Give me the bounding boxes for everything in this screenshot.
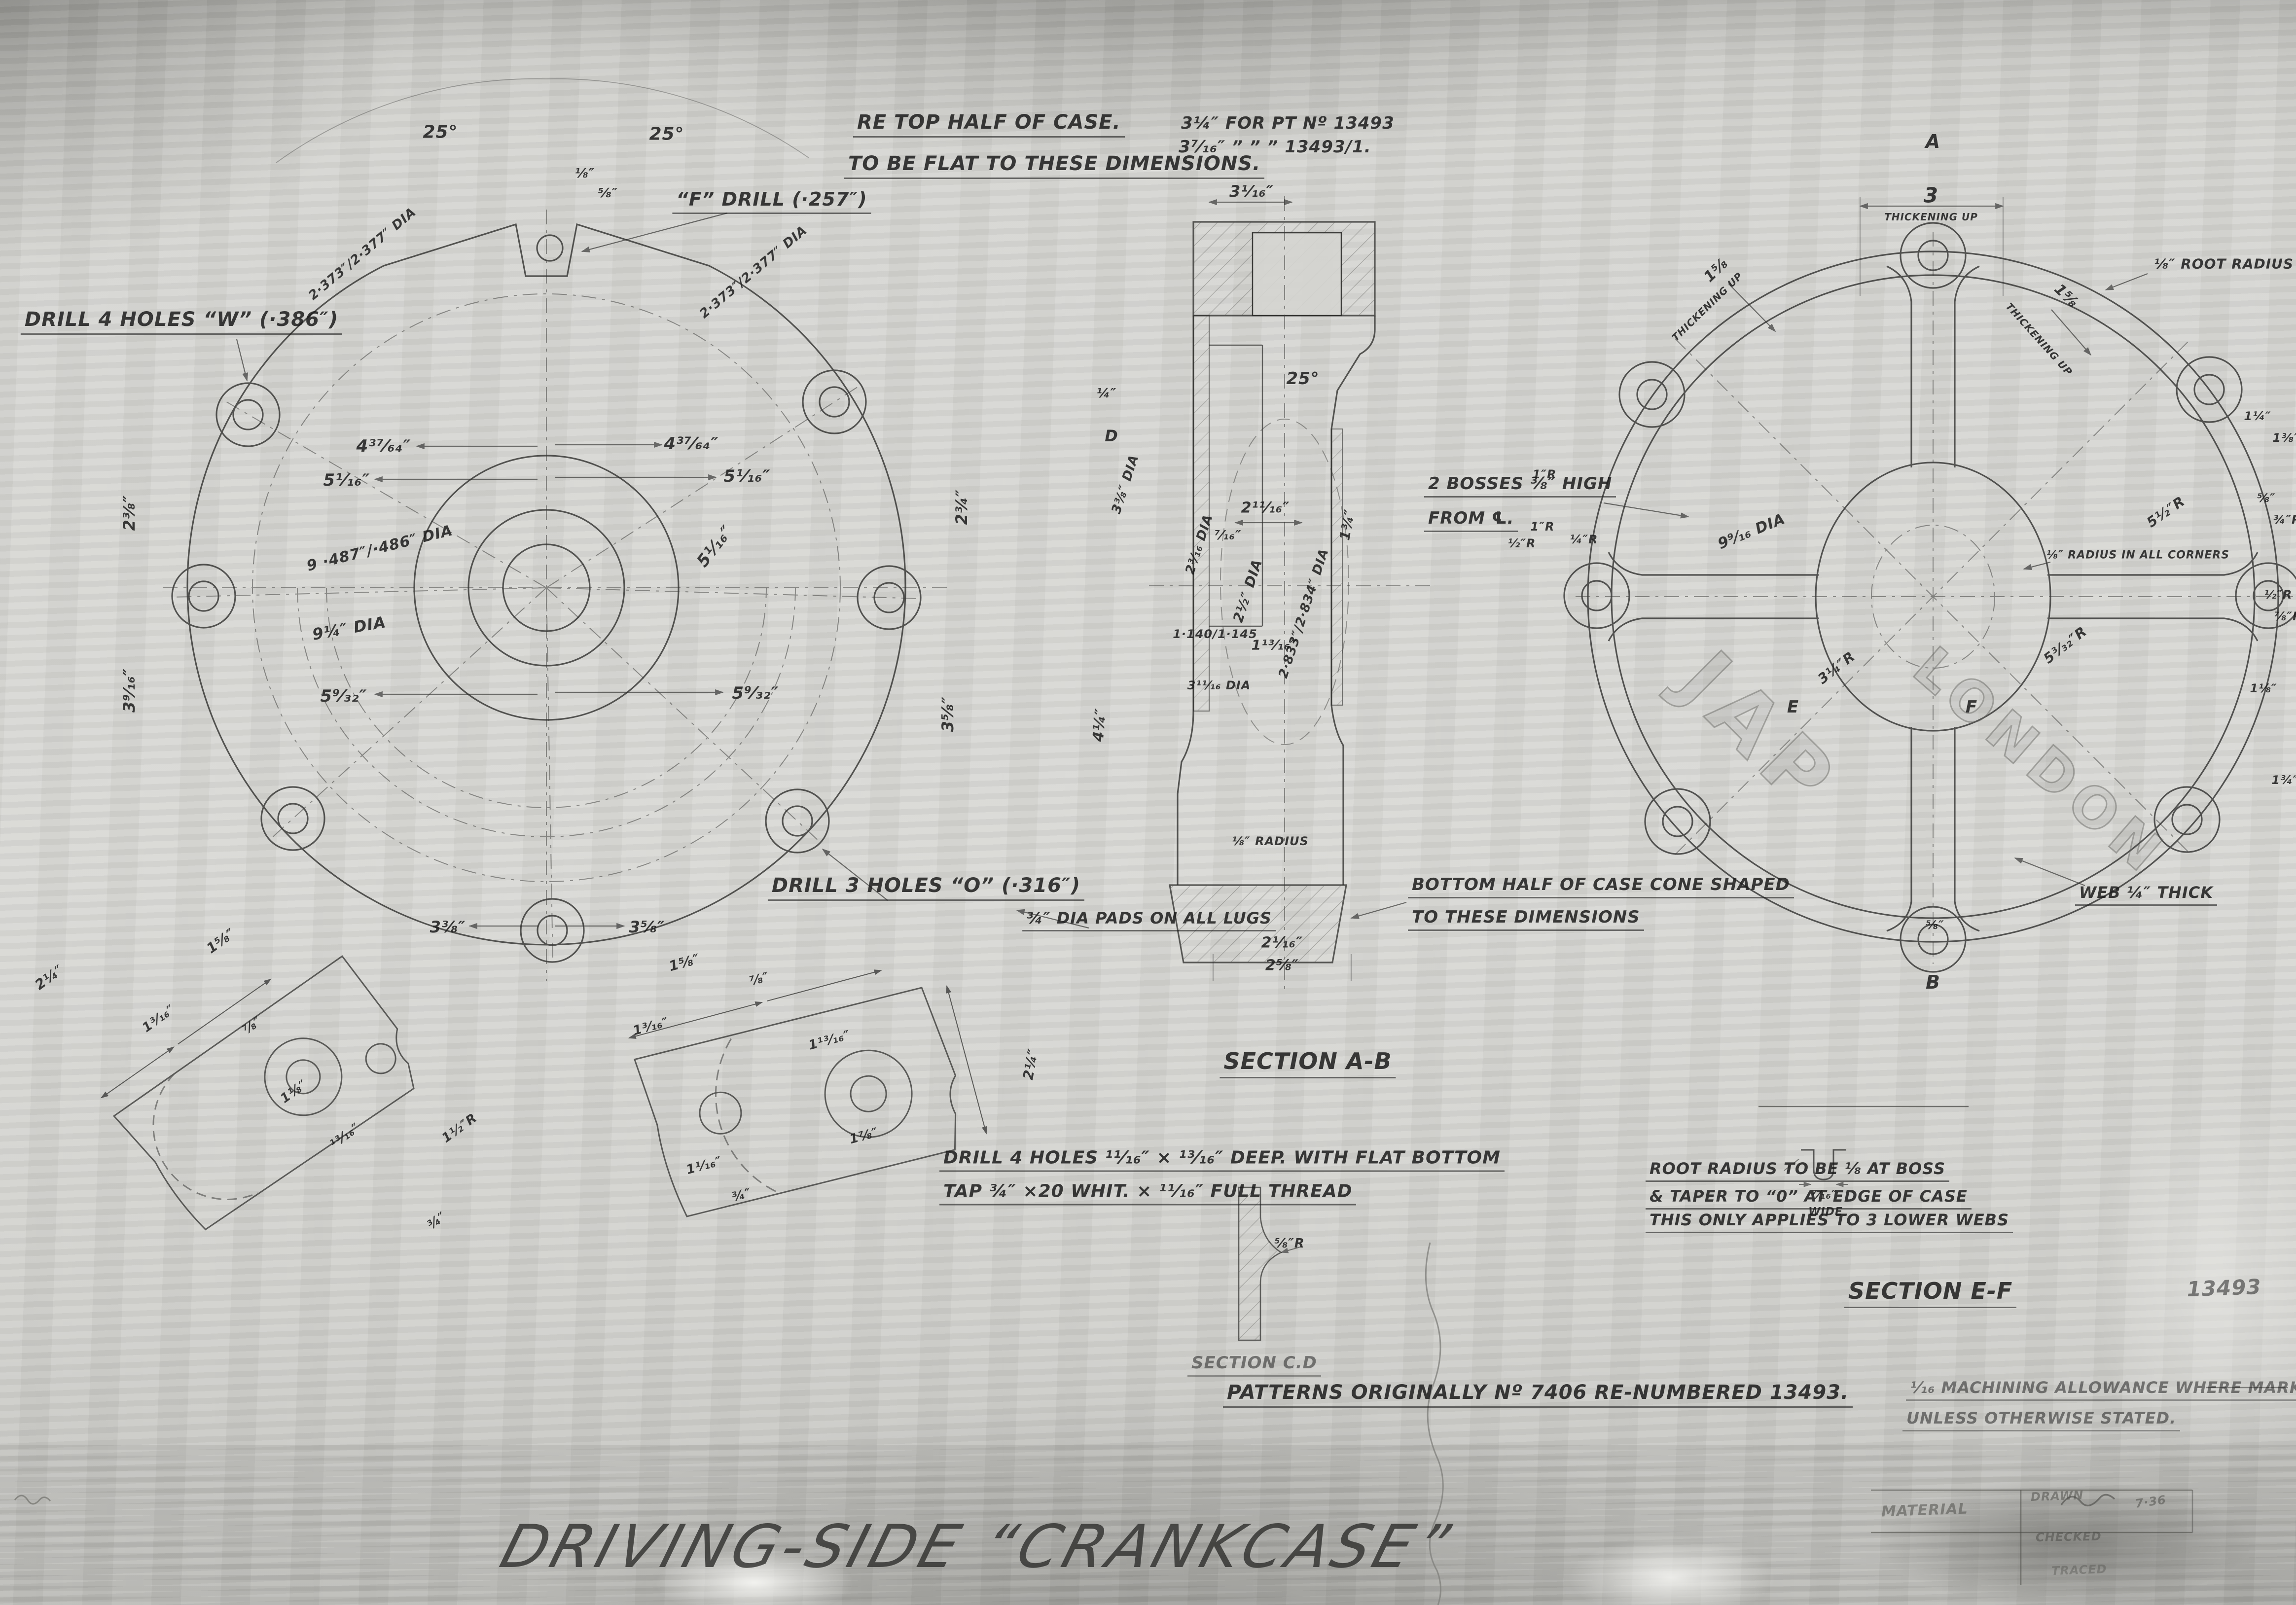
title-block-material-label: MATERIAL [1881, 1500, 1968, 1520]
dim: 3⅝″ [629, 918, 665, 936]
section-letter-a: A [1926, 131, 1940, 152]
label-section-ab: SECTION A-B [1220, 1048, 1396, 1078]
note-drill-tap-1: DRILL 4 HOLES ¹¹⁄₁₆″ × ¹³⁄₁₆″ DEEP. WITH… [939, 1148, 1505, 1172]
dim: 3⁹⁄₁₆″ [120, 668, 139, 713]
note-drill-3-holes-o: DRILL 3 HOLES “O” (·316″) [768, 874, 1084, 901]
dim: ⅛″ RADIUS [1232, 834, 1309, 848]
label-section-cd: SECTION C.D [1187, 1353, 1321, 1377]
dim: 25° [649, 124, 684, 144]
dim: 5¹⁄₁₆″ [323, 470, 370, 490]
dim: ¼″R [1570, 533, 1598, 546]
drawing-linework [0, 0, 2296, 1605]
dim: 3¹¹⁄₁₆ DIA [1187, 678, 1251, 692]
dim: 1¼″ [2244, 409, 2271, 423]
dim: 1″R [1533, 467, 1557, 481]
note-web-thick: WEB ¼″ THICK [2075, 883, 2217, 906]
dim: 1¹³⁄₁₆″ [1252, 637, 1297, 653]
section-ef-sketch [1758, 1106, 2288, 1388]
drawing-number-pencil: 13493 [2187, 1275, 2262, 1301]
dim: ⅛″ [575, 166, 595, 181]
note-bosses-1: 2 BOSSES ⅜″ HIGH [1424, 474, 1616, 498]
dim: 3¹⁄₁₆″ [1229, 182, 1274, 201]
dim: WIDE [1808, 1206, 1843, 1218]
detail-lug-view-2 [629, 955, 988, 1224]
drawing-title: DRIVING-SIDE “CRANKCASE” [493, 1513, 1460, 1581]
label-section-ef: SECTION E-F [1844, 1278, 2016, 1308]
dim: 3⅜″ [430, 918, 466, 936]
dim: 2¾″ [952, 489, 971, 525]
dim: ½″R [1507, 536, 1536, 550]
section-letter-d: D [1105, 427, 1118, 445]
dim: 25° [423, 122, 458, 143]
detail-lug-view-1 [101, 936, 430, 1238]
dim: ⅛″ RADIUS IN ALL CORNERS [2046, 549, 2229, 562]
dim: 5⁹⁄₃₂″ [320, 686, 367, 706]
section-letter-f: F [1966, 697, 1977, 717]
dim: THICKENING UP [1884, 211, 1978, 223]
dim: 4¼″ [1090, 707, 1110, 742]
dim: ⅝″ [2257, 491, 2276, 505]
dim: ½″R [2264, 588, 2292, 602]
dim: ⅞″R [2274, 609, 2296, 623]
section-letter-e: E [1787, 697, 1799, 717]
note-top-half-1: RE TOP HALF OF CASE. [853, 111, 1125, 138]
note-part-no-2: 3⁷⁄₁₆″ ” ” ” 13493/1. [1179, 137, 1371, 157]
dim: 1¾″ [2271, 773, 2296, 787]
note-machining-2: UNLESS OTHERWISE STATED. [1902, 1409, 2180, 1431]
note-machining-1: ¹⁄₁₆ MACHINING ALLOWANCE WHERE MARKED [1906, 1378, 2296, 1401]
note-drill-4-holes-w: DRILL 4 HOLES “W” (·386″) [21, 308, 342, 335]
dim: 5⁹⁄₃₂″ [732, 683, 779, 703]
dim: ⅝″ [1926, 918, 1944, 932]
dim: ⅝″R [1274, 1236, 1305, 1251]
dim: 1·140/1·145 [1173, 627, 1257, 641]
dim: 3⅝″ [938, 696, 957, 732]
dim: 5¹⁄₁₆″ [723, 466, 770, 486]
dim: 2¹⁄₁₆″ [1261, 934, 1303, 952]
section-letter-b: B [1926, 971, 1940, 993]
title-block-traced-label: TRACED [2051, 1562, 2108, 1578]
dim: 2⅜″ [120, 495, 139, 531]
section-cd-sketch [1239, 1187, 1302, 1340]
corner-pencil-scribble [15, 1496, 50, 1504]
note-pads: ¾″ DIA PADS ON ALL LUGS [1022, 909, 1276, 931]
note-bottom-half-2: TO THESE DIMENSIONS [1408, 907, 1644, 931]
dim: 25° [1286, 369, 1319, 389]
title-block-drawn-label: DRAWN [2031, 1488, 2084, 1504]
title-block-checked-label: CHECKED [2036, 1530, 2102, 1544]
dim: 3 [1924, 183, 1938, 208]
dim: ¾″R [2273, 513, 2296, 527]
dim: 4³⁷⁄₆₄″ [356, 436, 411, 456]
blueprint-sheet: JAP LONDON RE TOP HALF OF CASE.TO BE FLA… [0, 0, 2296, 1605]
note-root-radius-edge: ⅛″ ROOT RADIUS ALL A [2154, 256, 2296, 272]
note-drill-tap-2: TAP ¾″ ×20 WHIT. × ¹¹⁄₁₆″ FULL THREAD [939, 1181, 1356, 1206]
note-root-radius-1: ROOT RADIUS TO BE ⅛ AT BOSS [1646, 1159, 1949, 1182]
note-f-drill: “F” DRILL (·257″) [672, 188, 871, 214]
dim: 4³⁷⁄₆₄″ [664, 434, 718, 454]
note-part-no-1: 3¼″ FOR PT Nº 13493 [1181, 113, 1395, 133]
dim: 2¹¹⁄₁₆″ [1241, 499, 1290, 517]
dim: 1⅜″ [2272, 431, 2296, 445]
dim: 1″R [1531, 520, 1555, 534]
note-bosses-2: FROM ℄. [1424, 508, 1518, 532]
note-bottom-half-1: BOTTOM HALF OF CASE CONE SHAPED [1408, 875, 1794, 898]
dim: ⁷⁄₁₆″ [1214, 528, 1241, 543]
note-patterns: PATTERNS ORIGINALLY Nº 7406 RE-NUMBERED … [1223, 1381, 1853, 1408]
dim: ¼″ [1097, 386, 1117, 401]
dim: 2⅝″ [1265, 957, 1299, 974]
dim: ⁷⁄₁₆″ [1812, 1188, 1837, 1202]
middle-section-ab [1149, 196, 1688, 991]
dim: 1⅛″ [2250, 681, 2277, 695]
dim: ⅝″ [598, 186, 618, 201]
